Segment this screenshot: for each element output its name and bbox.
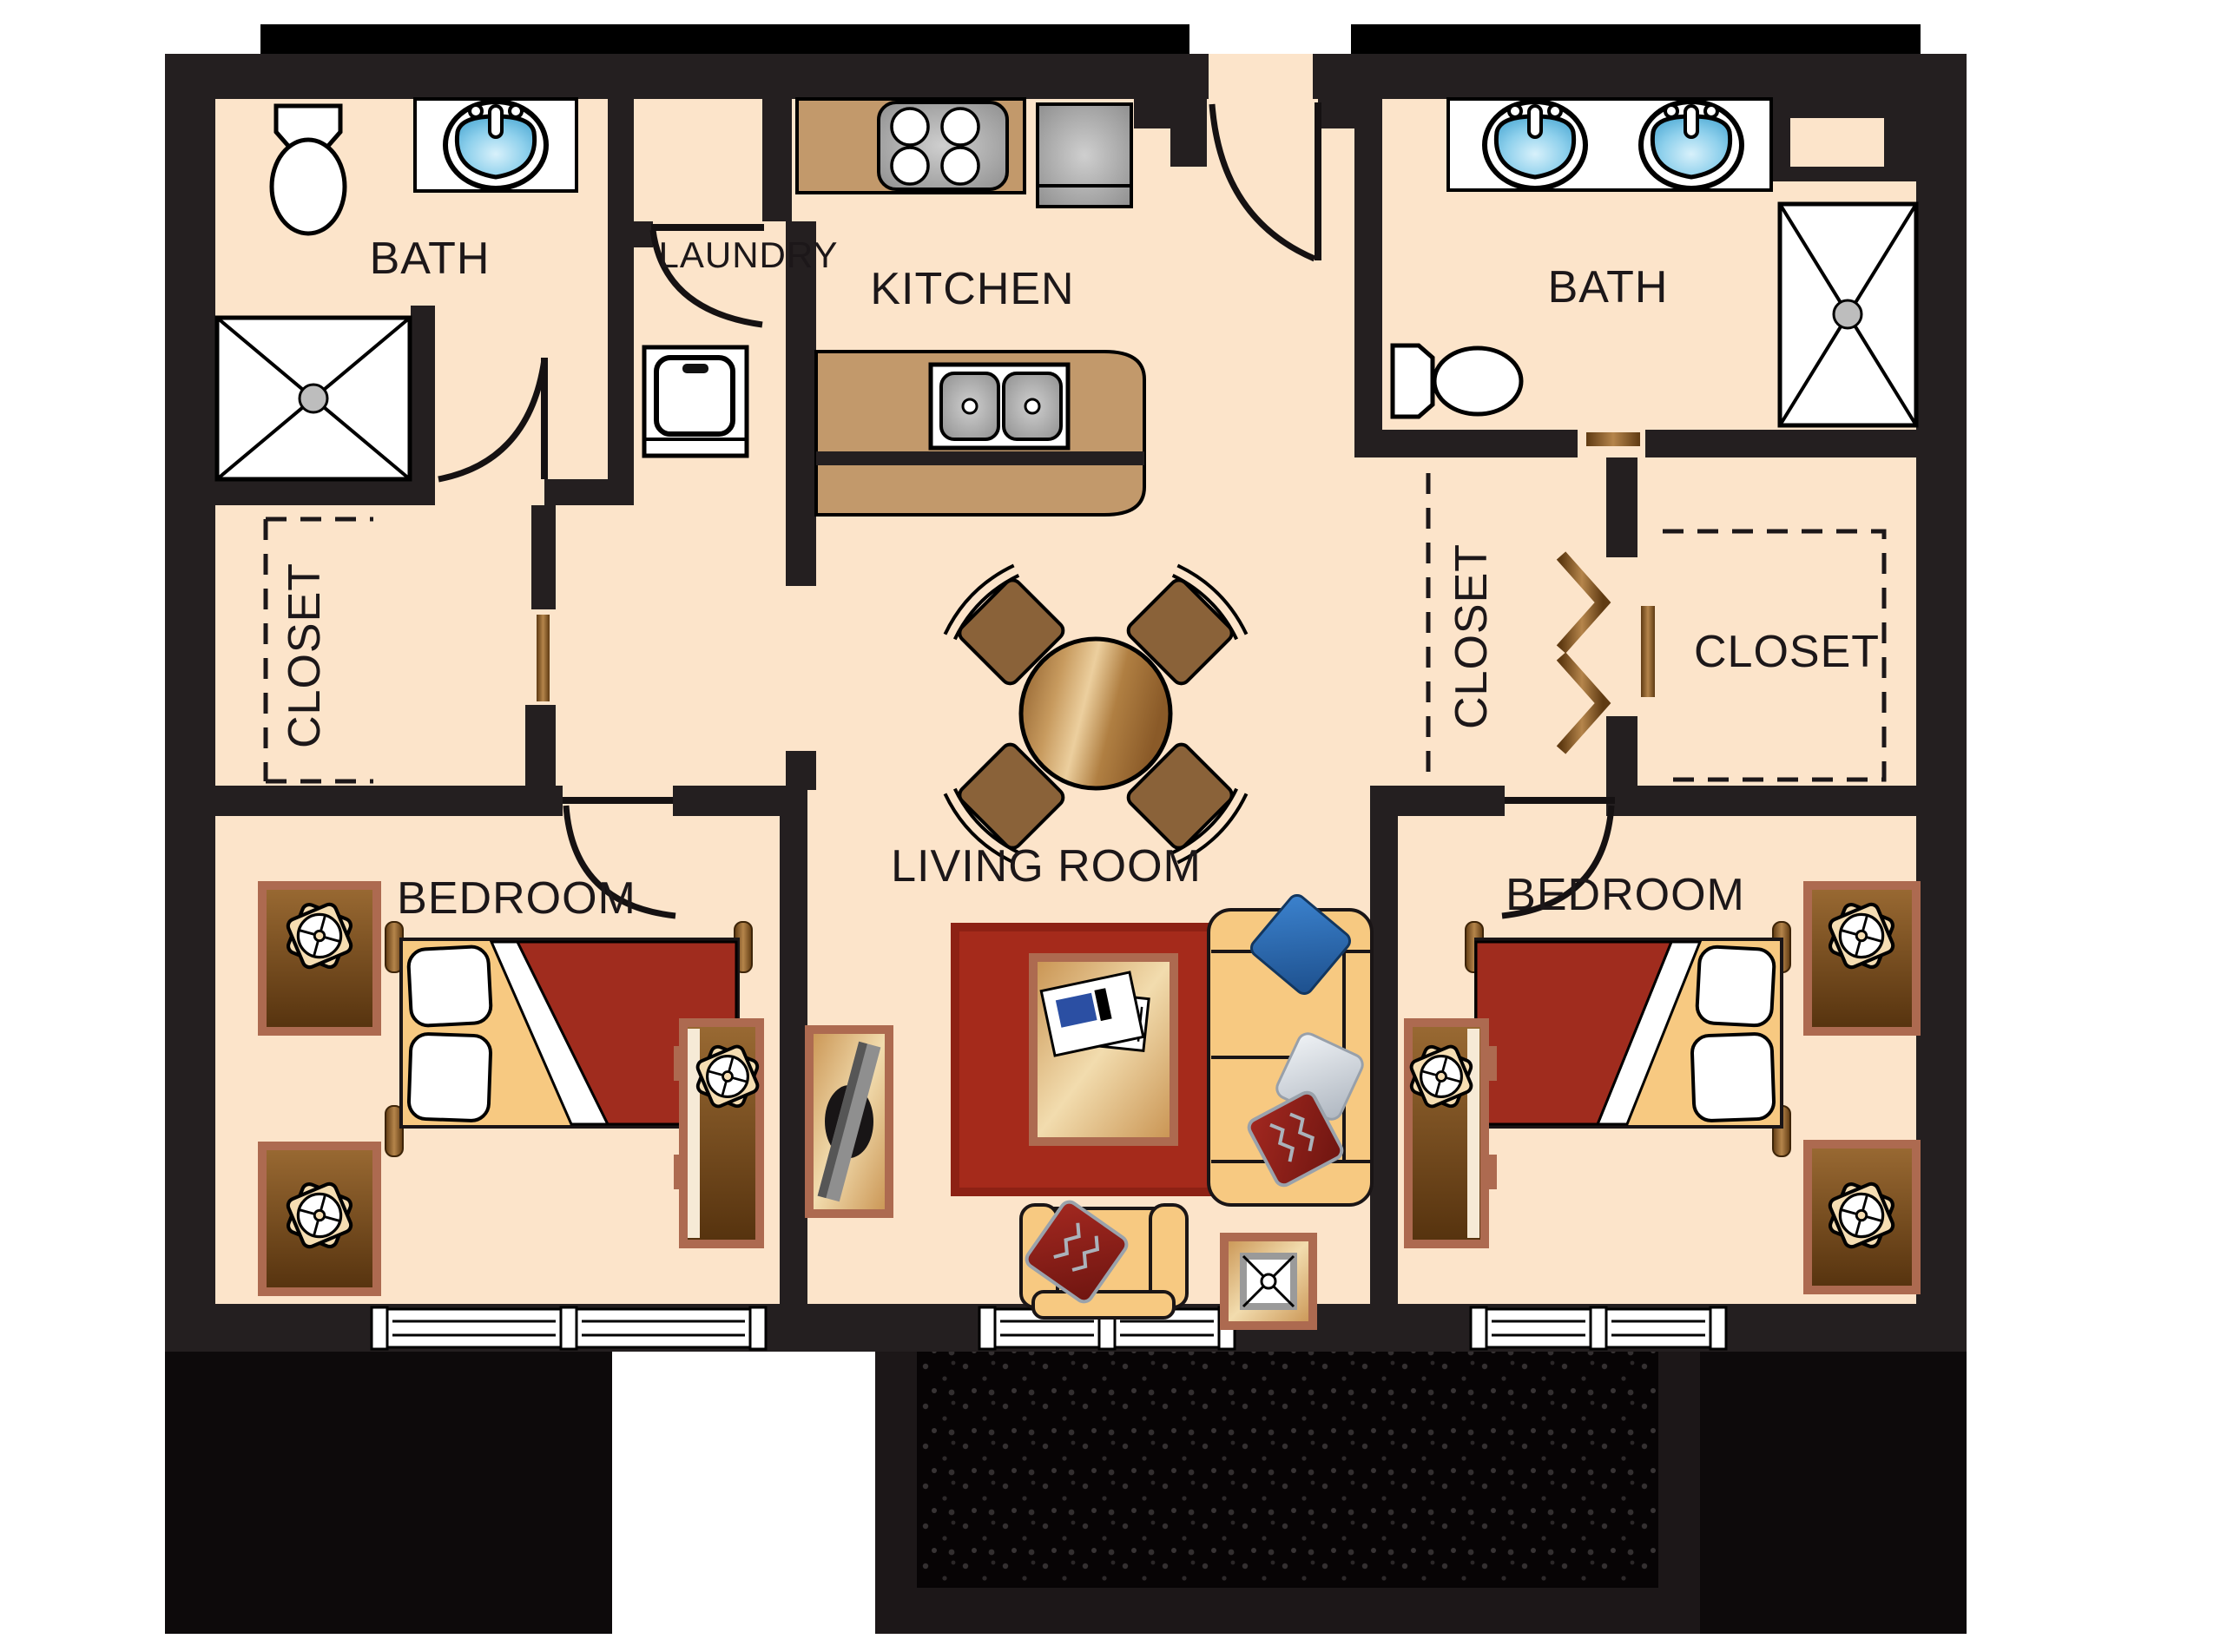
stove <box>879 102 1007 189</box>
patio-left-slab <box>165 1352 612 1634</box>
bedroom-right-windows <box>1471 1307 1726 1349</box>
patio-right-slab <box>1700 1352 1967 1634</box>
pillow <box>1691 1033 1774 1121</box>
floor-plan-svg: BATH LAUNDRY KITCHEN BATH CLOSET CLOSET … <box>0 0 2214 1652</box>
patio-floor <box>917 1352 1658 1588</box>
bed <box>1466 922 1790 1156</box>
label-living-room: LIVING ROOM <box>891 841 1202 892</box>
shower <box>217 318 410 479</box>
toilet <box>272 106 345 234</box>
armchair <box>1021 1199 1187 1318</box>
label-bath-right: BATH <box>1548 262 1669 313</box>
bedroom-left-windows <box>372 1307 766 1349</box>
pillow <box>1697 946 1775 1026</box>
double-vanity <box>1448 99 1771 190</box>
label-bedroom-right: BEDROOM <box>1506 870 1745 920</box>
dresser <box>674 1023 760 1244</box>
dresser <box>1408 1023 1497 1244</box>
label-bedroom-left: BEDROOM <box>397 873 636 924</box>
label-closet-right: CLOSET <box>1694 627 1880 677</box>
label-closet-left: CLOSET <box>280 563 330 748</box>
coffee-table <box>1033 958 1174 1142</box>
label-laundry: LAUNDRY <box>659 234 839 275</box>
nightstand <box>262 885 377 1031</box>
sofa <box>1209 892 1372 1205</box>
laundry <box>644 347 747 456</box>
refrigerator <box>1038 104 1131 207</box>
nightstand <box>1808 885 1916 1031</box>
toilet <box>1393 346 1521 417</box>
rod-in-wall <box>1586 432 1640 446</box>
nightstand <box>262 1146 377 1292</box>
end-table-lamp <box>1224 1237 1313 1326</box>
floor-plan: BATH LAUNDRY KITCHEN BATH CLOSET CLOSET … <box>0 0 2214 1652</box>
tv-console <box>809 1030 889 1214</box>
washer <box>644 347 747 456</box>
label-kitchen: KITCHEN <box>870 264 1074 314</box>
label-bath-left: BATH <box>370 234 491 284</box>
closet-rod <box>1641 606 1655 697</box>
vanity-sink <box>415 99 577 191</box>
shower <box>1780 204 1916 425</box>
closet-rod <box>537 615 550 701</box>
label-closet-mid: CLOSET <box>1446 543 1497 729</box>
nightstand <box>1808 1144 1916 1290</box>
pillow <box>408 946 491 1027</box>
dining-table <box>1021 639 1170 788</box>
island-double-sink <box>816 352 1144 515</box>
patio-balcony <box>165 1352 1967 1634</box>
pillow <box>408 1033 491 1121</box>
